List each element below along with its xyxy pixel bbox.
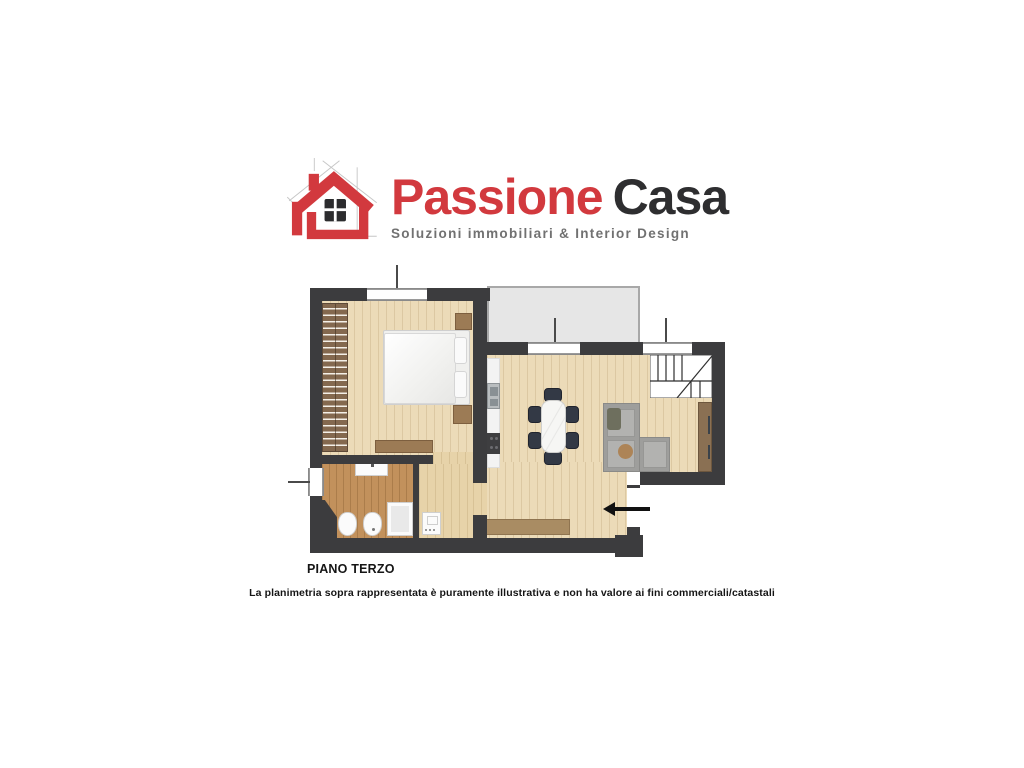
wall-bathroom-divider (413, 462, 419, 538)
wall-step-horizontal (640, 472, 725, 485)
wall-central-vertical-lower (473, 515, 487, 538)
bedroom-window (367, 288, 427, 301)
brand-tagline: Soluzioni immobiliari & Interior Design (391, 226, 728, 241)
brand-first-word: Passione (391, 169, 603, 225)
nightstand (453, 405, 472, 424)
nightstand (455, 313, 472, 330)
bedroom-door-gap (433, 452, 473, 464)
pillow (454, 371, 467, 398)
floor-plan (285, 260, 740, 560)
sofa (603, 403, 670, 472)
toilet (338, 512, 357, 536)
shower (387, 502, 413, 536)
dining-chair (544, 451, 562, 465)
living-window-2 (643, 342, 692, 355)
bedroom-bench (375, 440, 433, 453)
wall-bottom (310, 538, 643, 553)
bathroom-sink (355, 462, 388, 476)
dining-chair (565, 432, 579, 449)
hall-living-doorway (473, 483, 487, 515)
wall-cabinet (698, 402, 712, 472)
brand-logo: PassioneCasa Soluzioni immobiliari & Int… (285, 158, 728, 245)
window-tick (396, 265, 398, 288)
sideboard (477, 519, 570, 535)
wardrobe (322, 303, 348, 452)
balcony (487, 286, 640, 348)
floor-label: PIANO TERZO (307, 562, 395, 576)
disclaimer-text: La planimetria sopra rappresentata è pur… (0, 587, 1024, 599)
brand-name: PassioneCasa (391, 172, 728, 222)
dining-chair (528, 432, 542, 449)
pillow (454, 337, 467, 364)
sofa-pillow (618, 444, 633, 459)
sofa-pillow (607, 408, 621, 430)
living-window-1 (528, 342, 580, 355)
window-tick (665, 318, 667, 342)
house-logo-icon (285, 158, 379, 245)
entrance-arrow (603, 502, 650, 516)
dining-chair (565, 406, 579, 423)
kitchen-sink (487, 383, 500, 409)
window-tick (288, 481, 310, 483)
dining-table (541, 400, 566, 453)
wall-corner-block (615, 535, 643, 557)
washing-machine (422, 512, 441, 535)
wall-central-vertical (473, 288, 487, 483)
cooktop (487, 433, 500, 454)
brand-second-word: Casa (613, 169, 729, 225)
bidet (363, 512, 382, 536)
window-tick (554, 318, 556, 342)
staircase (650, 355, 712, 398)
wall-right (712, 342, 725, 485)
bed (383, 330, 470, 405)
bathroom-window (308, 468, 324, 496)
dining-chair (528, 406, 542, 423)
